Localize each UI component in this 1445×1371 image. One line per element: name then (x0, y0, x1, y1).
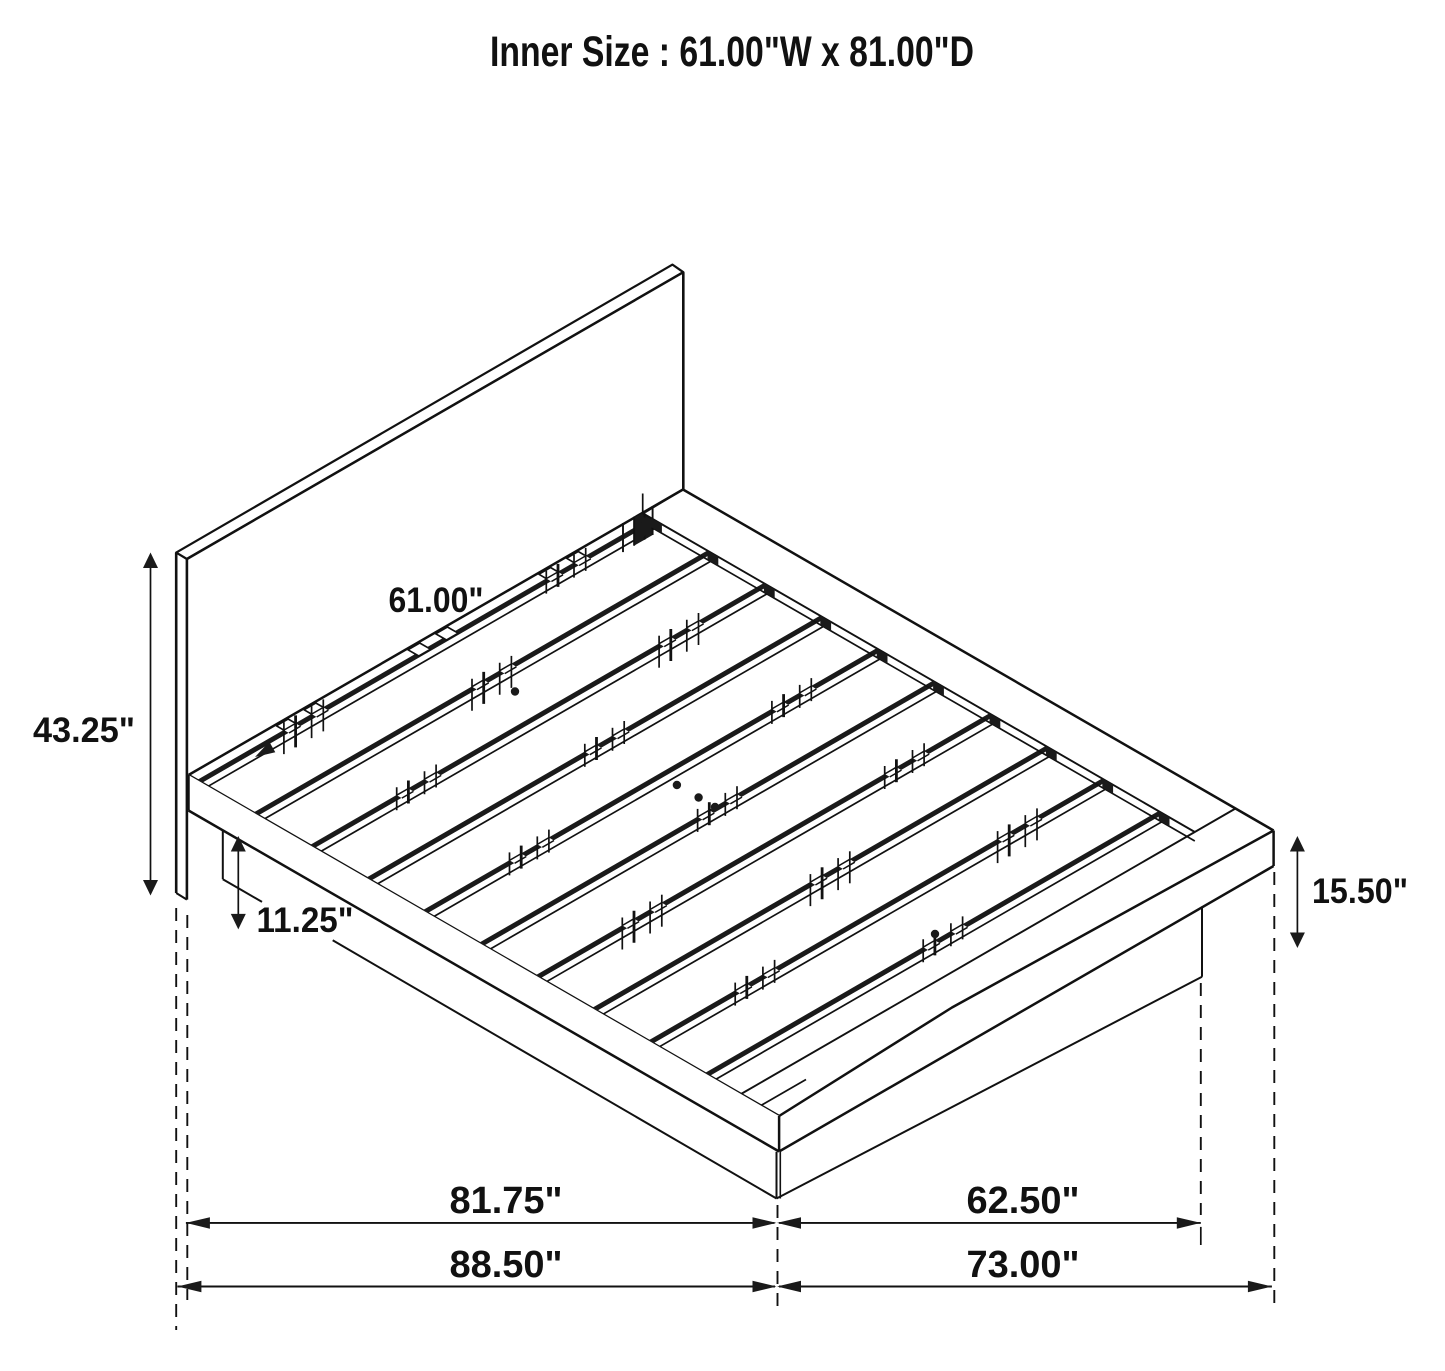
svg-text:Inner Size : 61.00"W x 81.00"D: Inner Size : 61.00"W x 81.00"D (490, 29, 974, 76)
svg-text:43.25": 43.25" (33, 711, 135, 750)
svg-text:73.00": 73.00" (966, 1244, 1079, 1286)
svg-text:15.50": 15.50" (1312, 872, 1408, 911)
svg-text:88.50": 88.50" (449, 1244, 562, 1286)
svg-text:61.00": 61.00" (389, 581, 484, 620)
svg-text:11.25": 11.25" (257, 901, 354, 940)
svg-text:62.50": 62.50" (966, 1180, 1079, 1222)
svg-text:81.75": 81.75" (449, 1180, 562, 1222)
